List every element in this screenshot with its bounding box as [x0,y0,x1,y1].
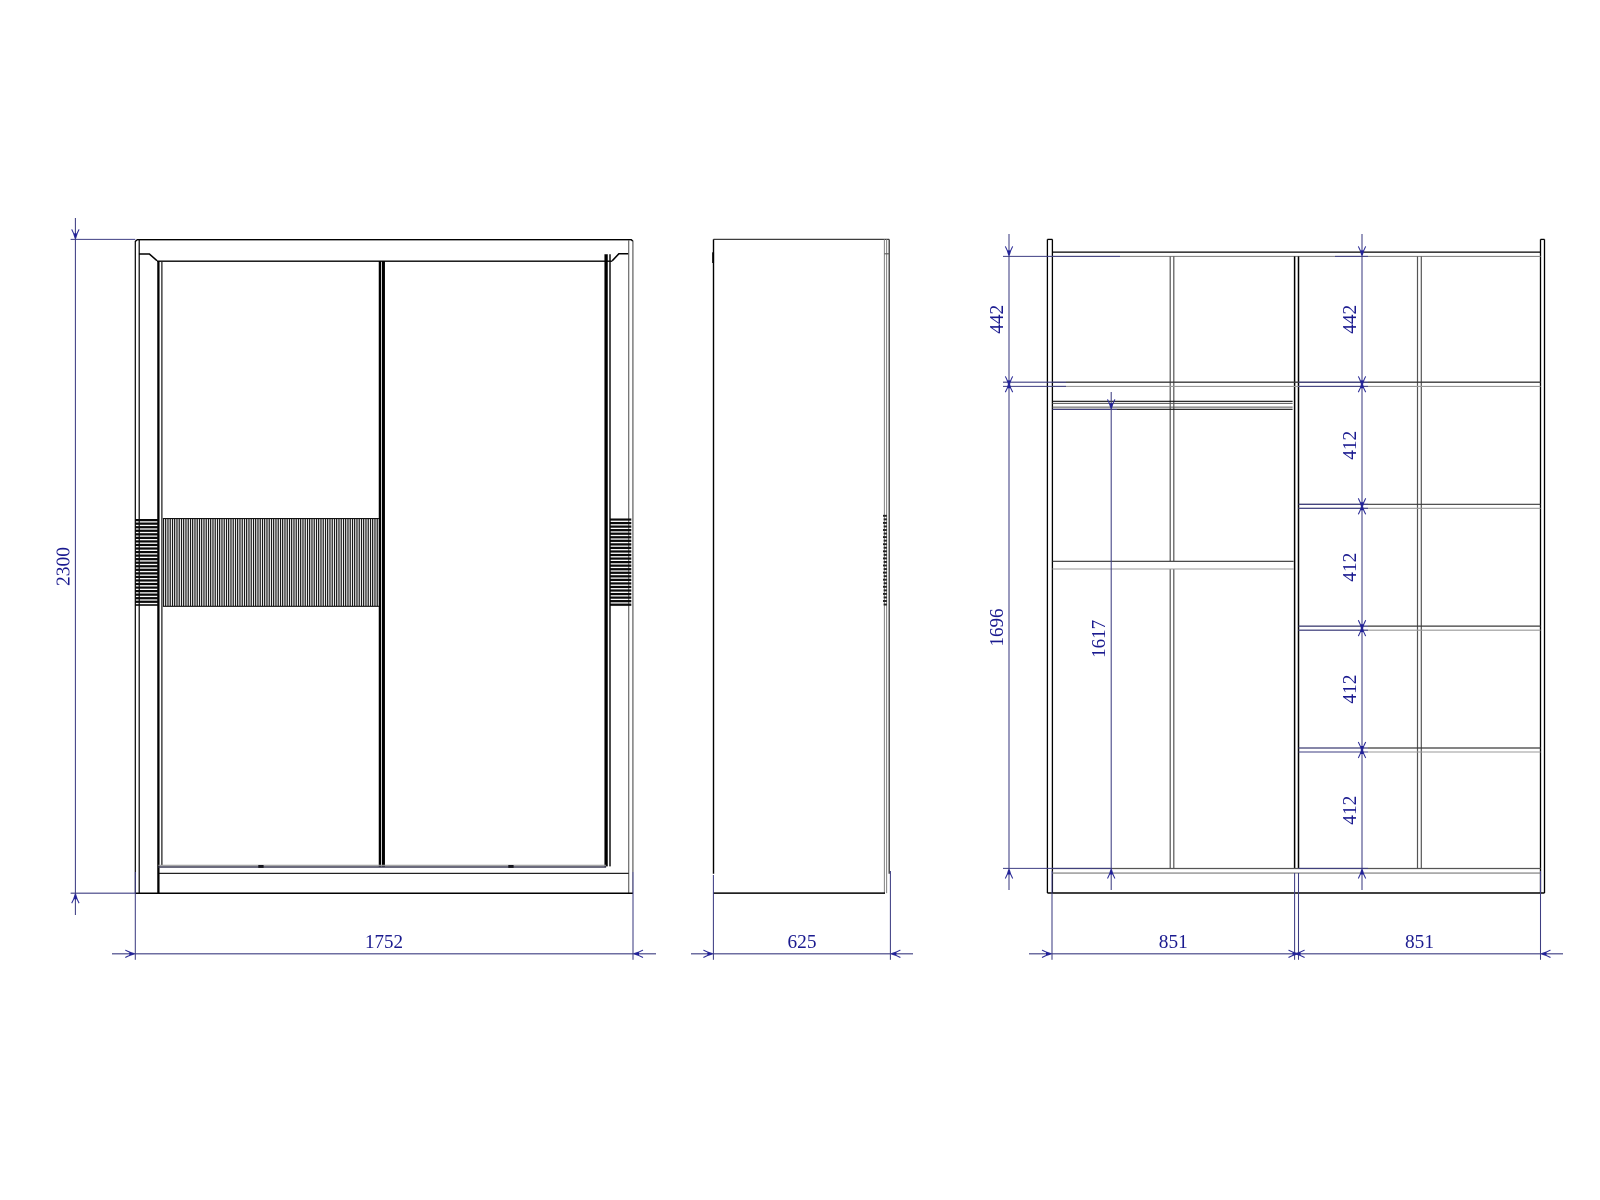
svg-text:1617: 1617 [1088,620,1110,658]
svg-text:412: 412 [1339,796,1361,825]
svg-text:1752: 1752 [365,931,403,953]
svg-text:625: 625 [788,931,817,953]
svg-text:1696: 1696 [986,609,1008,647]
svg-text:412: 412 [1339,431,1361,460]
svg-text:2300: 2300 [53,547,75,586]
svg-text:851: 851 [1405,931,1434,953]
svg-text:412: 412 [1339,675,1361,704]
svg-text:442: 442 [986,305,1008,334]
svg-text:442: 442 [1339,305,1361,334]
svg-text:851: 851 [1159,931,1188,953]
svg-text:412: 412 [1339,553,1361,582]
